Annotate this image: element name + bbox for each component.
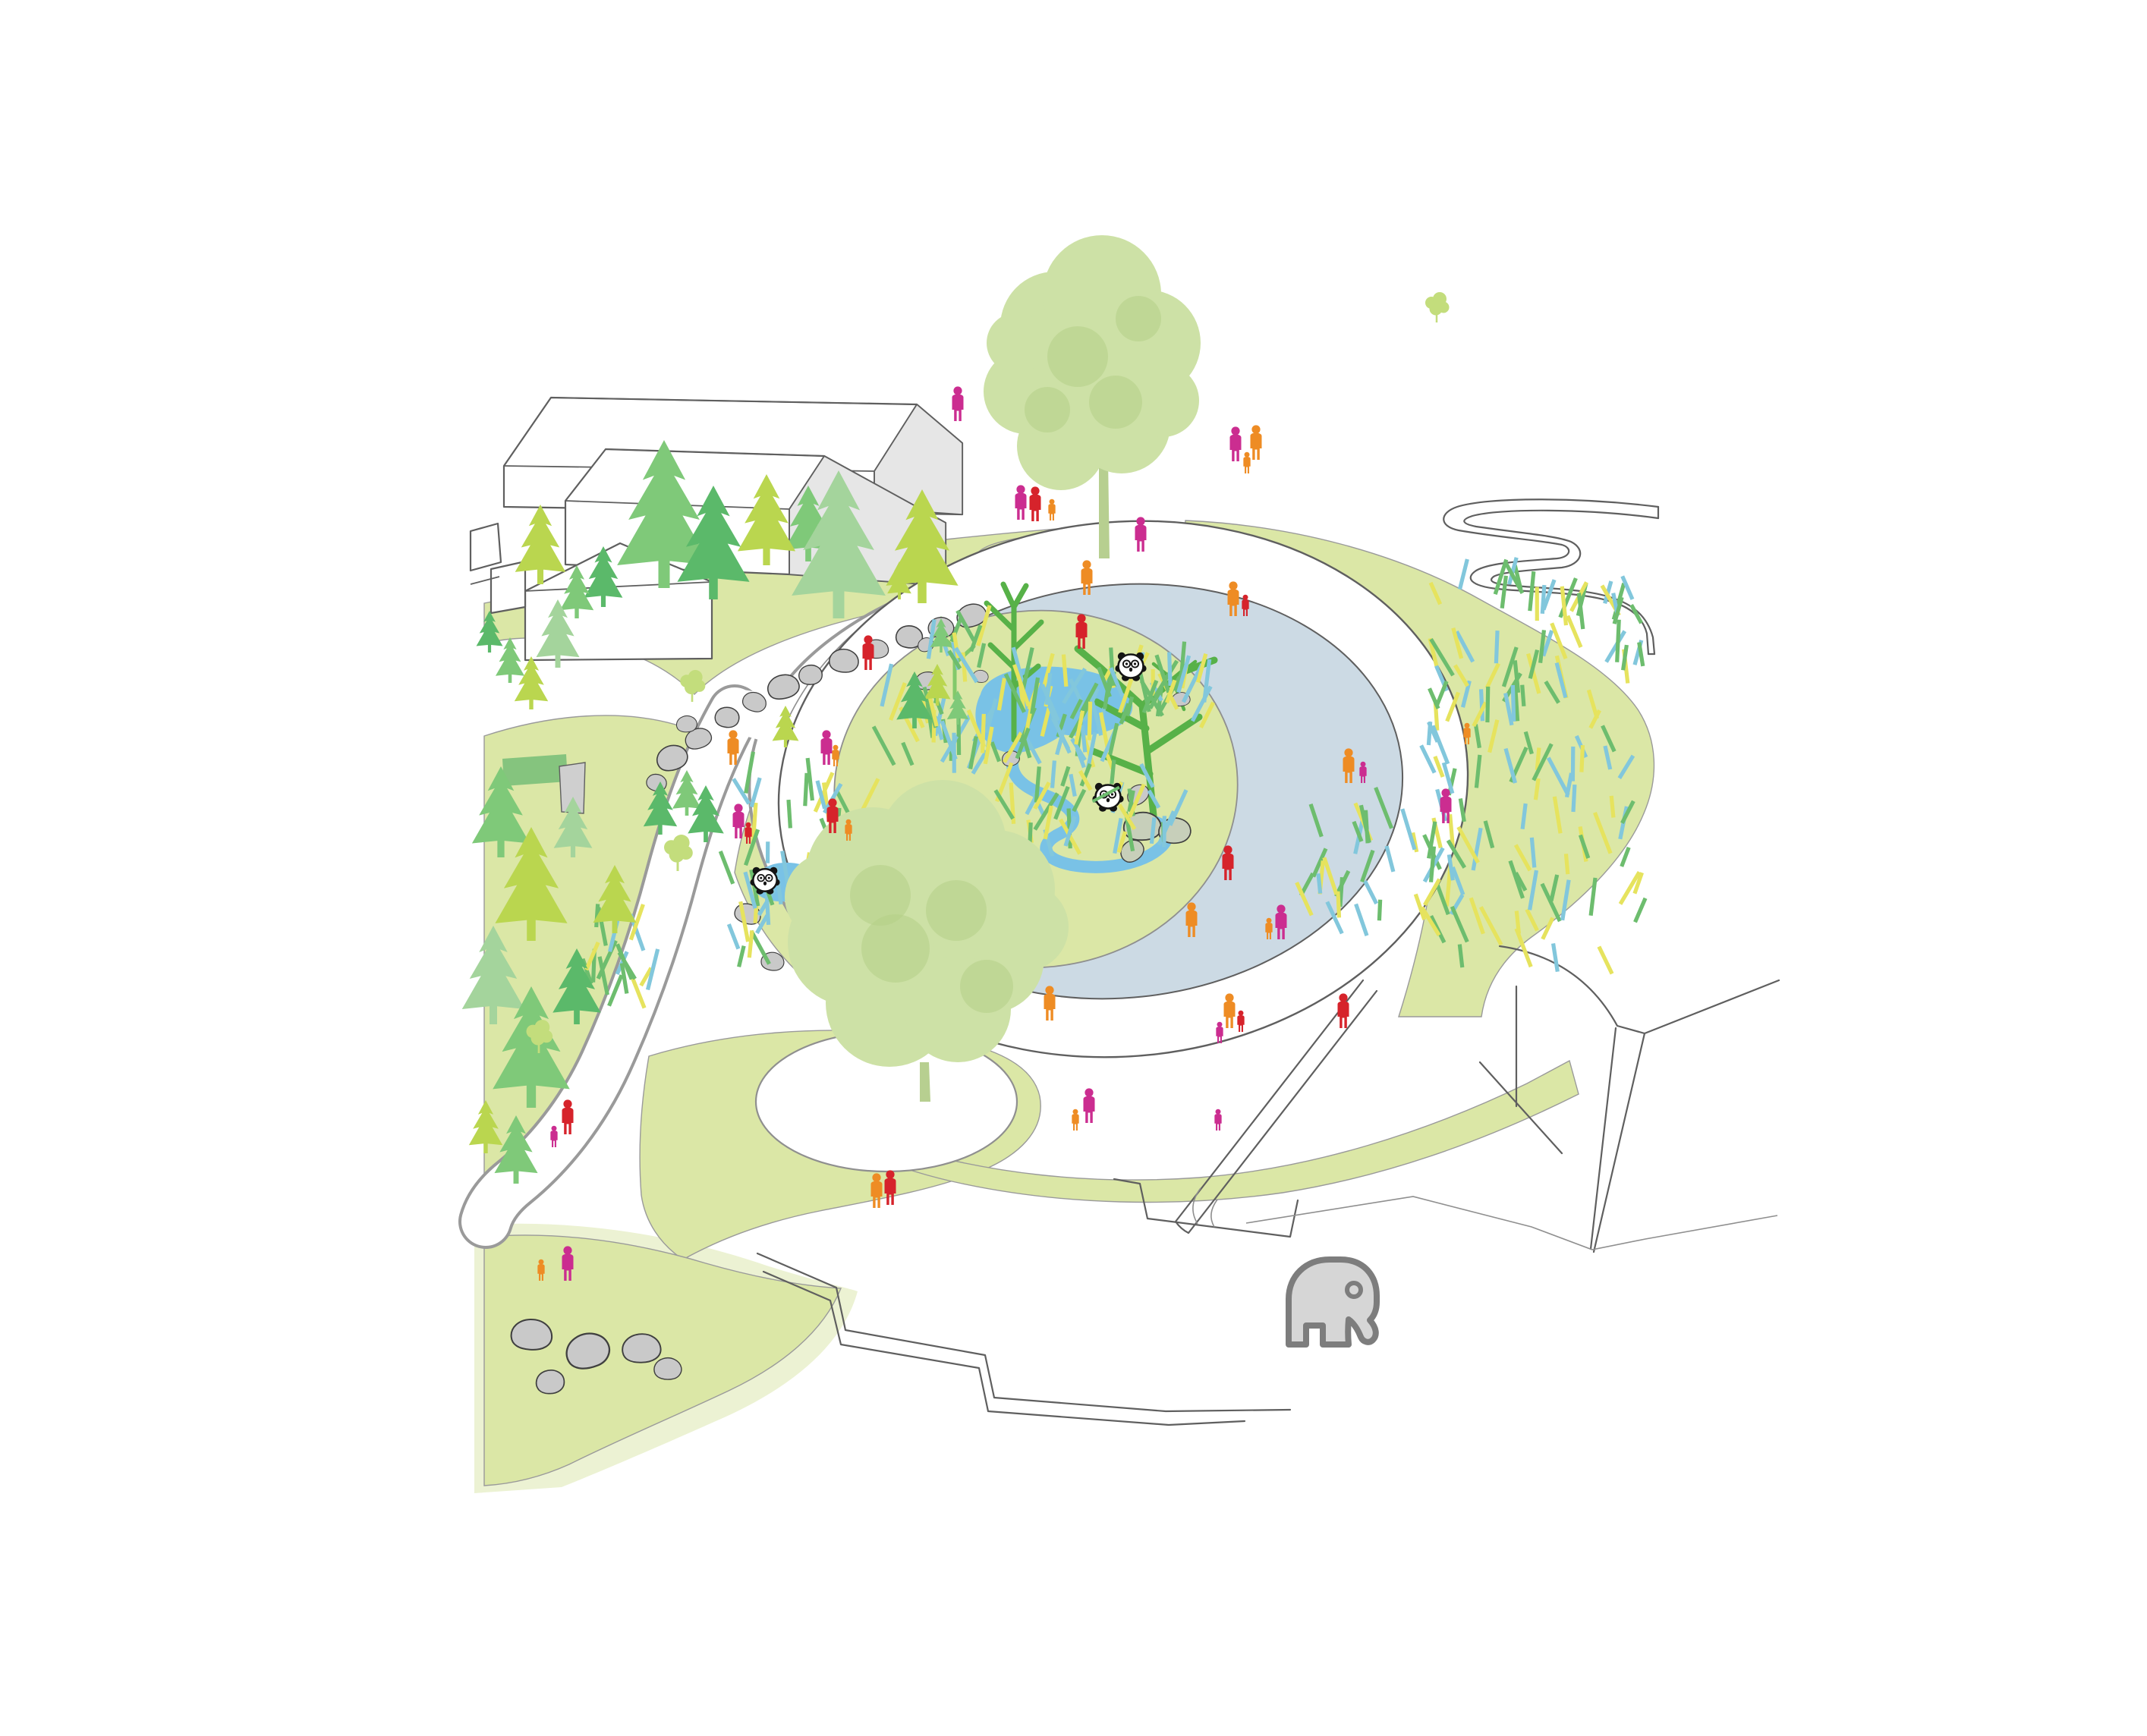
visitor-figure [1251, 425, 1262, 460]
visitor-figure [1015, 485, 1027, 520]
top-tree-group [984, 235, 1201, 558]
hedge-row [502, 754, 568, 786]
visitor-figure [1072, 1109, 1078, 1131]
visitor-figure [885, 1170, 896, 1205]
top-tree-trunk [1099, 458, 1110, 558]
visitor-figure [1230, 426, 1242, 461]
central-tree-trunk [920, 1062, 930, 1102]
visitor-figure [1048, 499, 1055, 520]
visitor-figure [1243, 452, 1250, 473]
terrace-lower-edge [1246, 1197, 1777, 1250]
site-plan-illustration [0, 0, 2147, 1736]
visitor-figure [1084, 1088, 1095, 1123]
elephant-body [1289, 1260, 1377, 1344]
visitor-figure [1030, 486, 1041, 521]
top-tree-canopy [984, 235, 1201, 490]
visitor-figure [871, 1173, 883, 1208]
hairpin-caps [1648, 507, 1658, 654]
panda-enclosure-diagram [0, 0, 2147, 1736]
small-tree [1425, 292, 1450, 322]
building-partial-west [471, 524, 501, 571]
pine-tree [515, 656, 548, 709]
elephant-icon [1289, 1260, 1377, 1344]
visitor-figure [1214, 1109, 1221, 1131]
visitor-figure [1338, 993, 1349, 1028]
visitor-figure [952, 386, 964, 421]
